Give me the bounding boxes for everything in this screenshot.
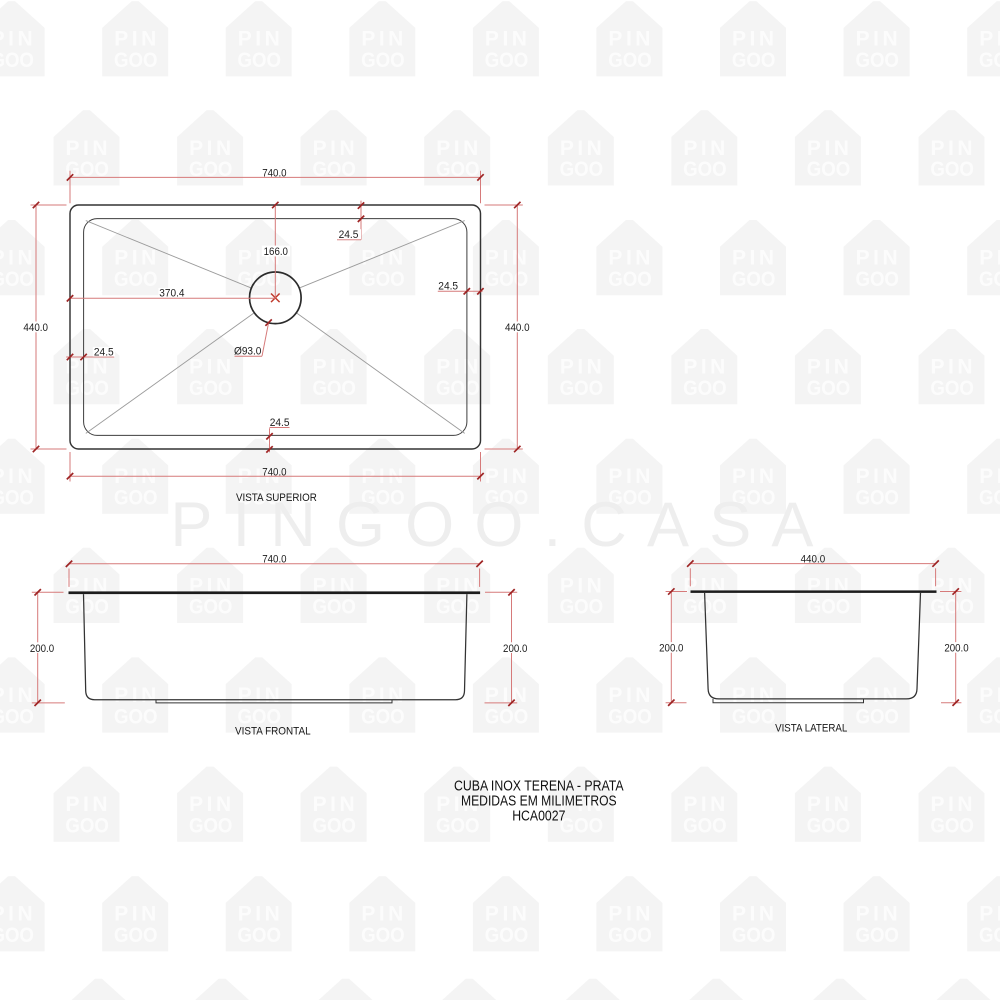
svg-text:440.0: 440.0 [505, 322, 530, 334]
svg-text:166.0: 166.0 [264, 246, 288, 258]
svg-text:Ø93.0: Ø93.0 [234, 346, 262, 358]
svg-text:CUBA INOX TERENA - PRATA: CUBA INOX TERENA - PRATA [454, 779, 624, 795]
svg-text:VISTA SUPERIOR: VISTA SUPERIOR [236, 492, 317, 504]
svg-text:440.0: 440.0 [801, 553, 826, 565]
svg-text:HCA0027: HCA0027 [512, 808, 565, 824]
svg-text:24.5: 24.5 [438, 281, 458, 293]
svg-text:24.5: 24.5 [339, 229, 359, 241]
svg-text:200.0: 200.0 [944, 643, 968, 655]
svg-text:440.0: 440.0 [23, 322, 48, 334]
svg-text:740.0: 740.0 [262, 466, 286, 478]
svg-text:740.0: 740.0 [262, 168, 286, 180]
svg-text:370.4: 370.4 [159, 288, 184, 300]
svg-text:200.0: 200.0 [659, 643, 683, 655]
svg-text:24.5: 24.5 [94, 346, 114, 358]
svg-text:200.0: 200.0 [30, 643, 54, 655]
svg-text:VISTA LATERAL: VISTA LATERAL [775, 723, 847, 735]
svg-text:VISTA FRONTAL: VISTA FRONTAL [235, 725, 311, 737]
svg-text:200.0: 200.0 [503, 643, 527, 655]
svg-text:740.0: 740.0 [262, 554, 286, 566]
svg-text:24.5: 24.5 [270, 417, 290, 429]
svg-text:MEDIDAS EM MILIMETROS: MEDIDAS EM MILIMETROS [461, 794, 617, 810]
